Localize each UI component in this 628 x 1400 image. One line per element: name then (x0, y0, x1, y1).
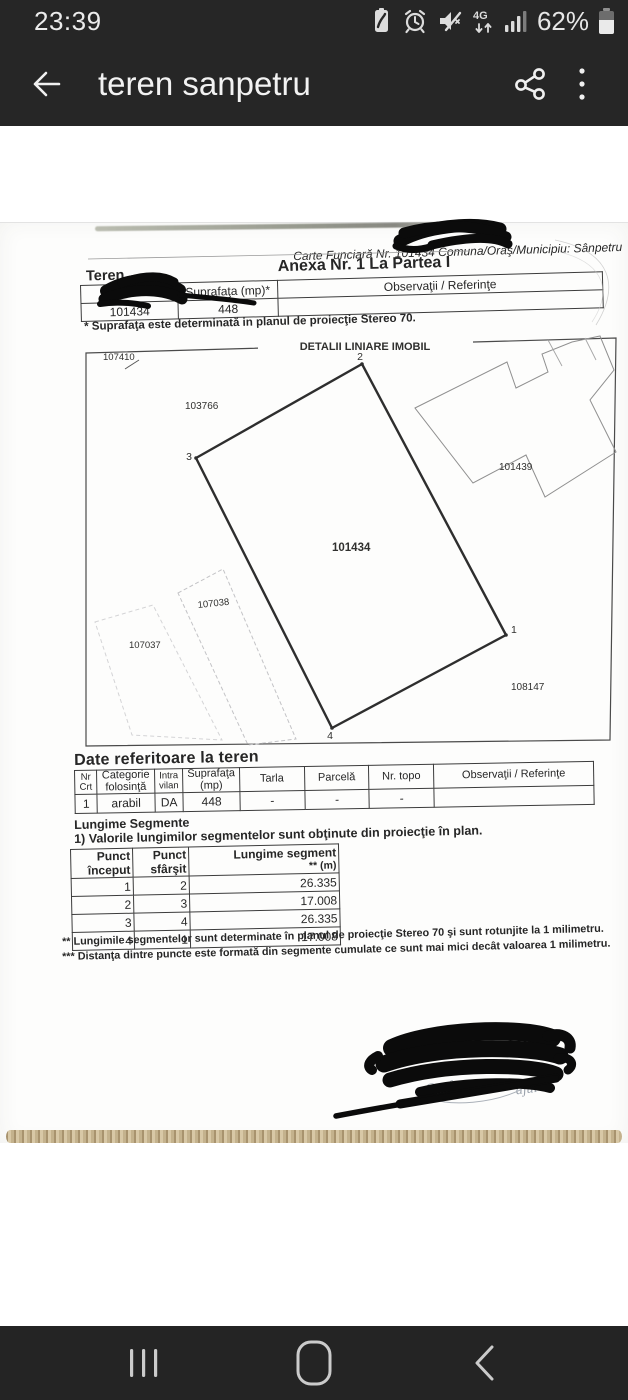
recents-button[interactable] (118, 1337, 170, 1389)
svg-text:4G: 4G (473, 10, 488, 22)
clock: 23:39 (34, 6, 102, 37)
teren-heading: Teren (86, 268, 125, 285)
share-button[interactable] (504, 58, 556, 110)
mute-icon (436, 7, 464, 35)
battery-percent: 62% (537, 6, 589, 37)
status-bar: 23:39 4G (0, 0, 628, 42)
cell-tarla: - (240, 791, 305, 811)
col-punct-sfarsit: Punct sfârşit (132, 847, 189, 877)
col-nr-topo: Nr. topo (369, 764, 434, 789)
back-button[interactable] (20, 58, 72, 110)
page-title: teren sanpetru (98, 65, 504, 103)
recents-icon (129, 1347, 159, 1379)
paper-stack-edge (6, 1130, 622, 1143)
document-photo[interactable] (0, 222, 628, 1143)
col-intravilan: Intra vilan (154, 769, 183, 794)
mobile-data-4g-icon: 4G (471, 7, 497, 35)
seg-end: 3 (133, 894, 189, 913)
col-observatii: Observaţii / Referinţe (434, 761, 594, 788)
cell-intravilan: DA (155, 793, 184, 812)
col-parcela: Parcelă (304, 765, 369, 790)
col-suprafata: Suprafaţa (mp) (183, 768, 240, 793)
home-icon (295, 1340, 333, 1386)
back-chevron-icon (472, 1341, 496, 1385)
battery-saver-icon (368, 7, 394, 35)
seg-end: 2 (133, 876, 189, 895)
col-punct-inceput: Punct început (71, 848, 134, 878)
back-arrow-icon (29, 67, 63, 101)
col-nr-crt: Nr Crt (75, 770, 98, 794)
cell-nr-topo: - (369, 788, 434, 808)
cell-observatii (434, 786, 594, 808)
alarm-icon (401, 7, 429, 35)
col-categorie: Categorie folosinţă (97, 769, 155, 794)
col-lungime: Lungime segment ** (m) (188, 844, 339, 876)
back-nav-button[interactable] (458, 1337, 510, 1389)
cell-suprafata: 448 (183, 792, 240, 812)
share-icon (512, 66, 548, 102)
seg-start: 2 (71, 895, 133, 914)
overflow-menu-button[interactable] (556, 58, 608, 110)
land-table: Nr Crt Categorie folosinţă Intra vilan S… (74, 761, 595, 814)
status-icons: 4G 62% (368, 6, 614, 37)
home-button[interactable] (288, 1337, 340, 1389)
battery-icon (599, 8, 614, 34)
screen: 23:39 4G (0, 0, 628, 1400)
app-bar: teren sanpetru (0, 42, 628, 126)
cell-categorie: arabil (97, 793, 155, 813)
cell-parcela: - (304, 789, 369, 809)
seg-end: 4 (134, 912, 190, 931)
seg-start: 1 (71, 877, 133, 896)
signal-strength-icon (504, 7, 528, 35)
col-tarla: Tarla (239, 766, 304, 791)
navigation-bar (0, 1326, 628, 1400)
seg-start: 3 (72, 913, 134, 932)
kebab-menu-icon (577, 65, 587, 103)
col-lungime-unit: ** (m) (191, 859, 336, 874)
cell-nr: 1 (75, 794, 98, 813)
